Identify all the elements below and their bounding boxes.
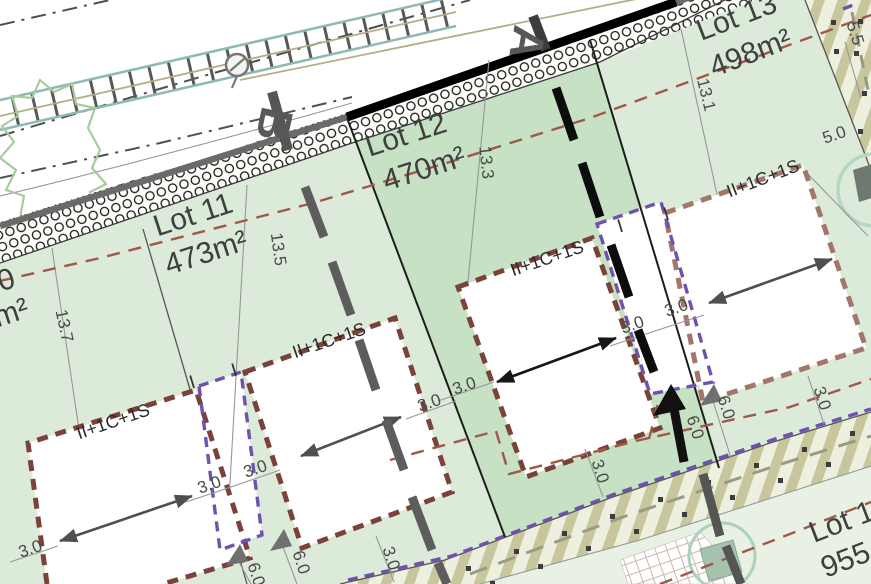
dim-13-3-label: 13.3 (475, 145, 497, 180)
site-plan-canvas: 0 m² Lot 11 473m² Lot 12 470m² Lot 13 49… (0, 0, 871, 584)
section-b-label: B (246, 103, 304, 146)
site-plan-page: 0 m² Lot 11 473m² Lot 12 470m² Lot 13 49… (0, 0, 871, 584)
boundary-dash-line (0, 0, 110, 25)
